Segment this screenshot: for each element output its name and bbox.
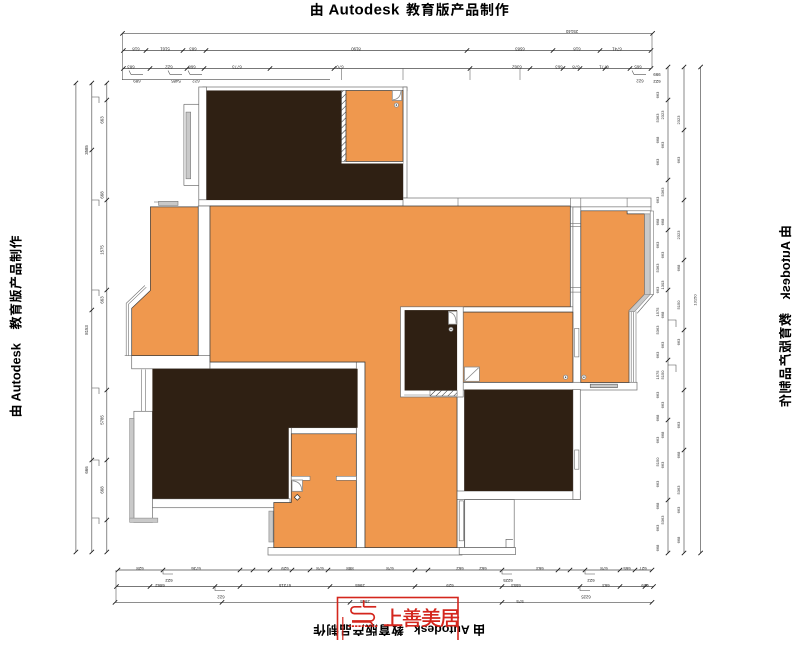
svg-text:6583: 6583 xyxy=(515,46,525,51)
svg-text:663: 663 xyxy=(655,241,660,248)
svg-text:663: 663 xyxy=(602,583,610,588)
svg-text:668: 668 xyxy=(100,486,105,494)
svg-text:6225: 6225 xyxy=(581,595,591,600)
svg-text:5363: 5363 xyxy=(676,485,681,495)
svg-text:663: 663 xyxy=(660,461,665,468)
svg-text:668: 668 xyxy=(655,414,660,421)
svg-text:689: 689 xyxy=(133,79,141,84)
svg-text:5150: 5150 xyxy=(655,457,660,467)
svg-text:663: 663 xyxy=(536,566,544,571)
svg-text:663: 663 xyxy=(660,401,665,408)
svg-text:25140: 25140 xyxy=(565,29,578,34)
svg-text:663: 663 xyxy=(655,351,660,358)
svg-text:67315: 67315 xyxy=(278,583,291,588)
svg-text:618: 618 xyxy=(573,46,581,51)
svg-text:665: 665 xyxy=(623,566,631,571)
svg-text:678: 678 xyxy=(316,566,324,571)
svg-text:5150: 5150 xyxy=(660,370,665,380)
svg-text:1575: 1575 xyxy=(655,307,660,317)
svg-text:5363: 5363 xyxy=(655,113,660,123)
svg-text:662: 662 xyxy=(456,566,464,571)
svg-text:683: 683 xyxy=(189,46,197,51)
svg-text:2323: 2323 xyxy=(660,110,665,120)
svg-text:1575: 1575 xyxy=(100,245,105,255)
svg-text:6773: 6773 xyxy=(232,64,242,69)
svg-text:663: 663 xyxy=(676,506,681,513)
svg-text:628: 628 xyxy=(136,566,144,571)
svg-text:663: 663 xyxy=(655,480,660,487)
svg-text:2965: 2965 xyxy=(355,583,365,588)
svg-text:668: 668 xyxy=(660,218,665,225)
svg-text:6362: 6362 xyxy=(512,64,522,69)
svg-text:665: 665 xyxy=(634,64,642,69)
svg-text:2965: 2965 xyxy=(360,599,370,604)
svg-text:622: 622 xyxy=(217,595,225,600)
svg-text:683: 683 xyxy=(127,64,135,69)
svg-text:8190: 8190 xyxy=(351,46,361,51)
svg-text:5363: 5363 xyxy=(660,187,665,197)
svg-text:622: 622 xyxy=(192,79,200,84)
svg-text:663: 663 xyxy=(676,421,681,428)
svg-text:663: 663 xyxy=(655,196,660,203)
svg-text:668: 668 xyxy=(100,191,105,199)
svg-text:678: 678 xyxy=(572,64,580,69)
svg-text:663: 663 xyxy=(655,391,660,398)
svg-text:622: 622 xyxy=(653,79,661,84)
svg-text:678: 678 xyxy=(600,566,608,571)
svg-text:629: 629 xyxy=(281,566,289,571)
svg-text:1575: 1575 xyxy=(655,370,660,380)
svg-text:663: 663 xyxy=(555,64,563,69)
svg-text:622: 622 xyxy=(636,79,644,84)
svg-text:663: 663 xyxy=(100,116,105,124)
svg-text:663: 663 xyxy=(676,338,681,345)
svg-text:1303: 1303 xyxy=(660,280,665,290)
svg-text:5363: 5363 xyxy=(655,263,660,273)
svg-text:668: 668 xyxy=(655,218,660,225)
svg-text:663: 663 xyxy=(655,436,660,443)
svg-text:668: 668 xyxy=(188,64,196,69)
svg-text:5485: 5485 xyxy=(171,79,181,84)
svg-text:662: 662 xyxy=(479,566,487,571)
svg-text:668: 668 xyxy=(660,311,665,318)
svg-text:663: 663 xyxy=(655,158,660,165)
svg-text:5785: 5785 xyxy=(100,415,105,425)
svg-text:663: 663 xyxy=(655,91,660,98)
svg-text:5363: 5363 xyxy=(660,515,665,525)
svg-text:668: 668 xyxy=(676,451,681,458)
svg-text:618: 618 xyxy=(132,46,140,51)
svg-text:663: 663 xyxy=(660,251,665,258)
svg-text:668: 668 xyxy=(655,544,660,551)
svg-text:13150: 13150 xyxy=(693,294,698,306)
svg-text:663: 663 xyxy=(100,296,105,304)
svg-text:668: 668 xyxy=(655,502,660,509)
svg-text:663: 663 xyxy=(655,524,660,531)
svg-text:668: 668 xyxy=(676,536,681,543)
svg-text:629: 629 xyxy=(641,583,649,588)
svg-text:Autodesk: Autodesk xyxy=(329,2,400,19)
svg-text:666: 666 xyxy=(84,466,89,474)
svg-text:Autodesk: Autodesk xyxy=(9,342,24,401)
svg-text:668: 668 xyxy=(676,264,681,271)
svg-text:999: 999 xyxy=(653,72,661,77)
svg-text:6741: 6741 xyxy=(612,46,622,51)
svg-text:6771: 6771 xyxy=(599,64,609,69)
svg-text:5150: 5150 xyxy=(676,300,681,310)
svg-text:5161: 5161 xyxy=(160,46,170,51)
svg-text:575: 575 xyxy=(516,599,524,604)
svg-text:6862: 6862 xyxy=(155,583,165,588)
svg-text:678: 678 xyxy=(386,566,394,571)
svg-text:5363: 5363 xyxy=(655,325,660,335)
svg-text:663: 663 xyxy=(660,141,665,148)
svg-text:2323: 2323 xyxy=(676,230,681,240)
svg-text:663: 663 xyxy=(660,341,665,348)
svg-text:3585: 3585 xyxy=(84,145,89,155)
svg-text:888: 888 xyxy=(346,566,354,571)
svg-text:622: 622 xyxy=(587,578,595,583)
svg-text:670: 670 xyxy=(336,64,344,69)
svg-text:622: 622 xyxy=(165,578,173,583)
svg-text:2323: 2323 xyxy=(676,115,681,125)
svg-text:8153: 8153 xyxy=(84,325,89,335)
svg-text:Autodesk: Autodesk xyxy=(778,241,793,300)
svg-text:627: 627 xyxy=(639,566,647,571)
svg-text:6225: 6225 xyxy=(503,578,513,583)
svg-text:668: 668 xyxy=(655,136,660,143)
svg-text:622: 622 xyxy=(165,64,173,69)
svg-text:668: 668 xyxy=(660,431,665,438)
svg-text:6736: 6736 xyxy=(191,566,201,571)
svg-text:629: 629 xyxy=(446,583,454,588)
svg-text:663: 663 xyxy=(676,156,681,163)
svg-text:663: 663 xyxy=(655,286,660,293)
